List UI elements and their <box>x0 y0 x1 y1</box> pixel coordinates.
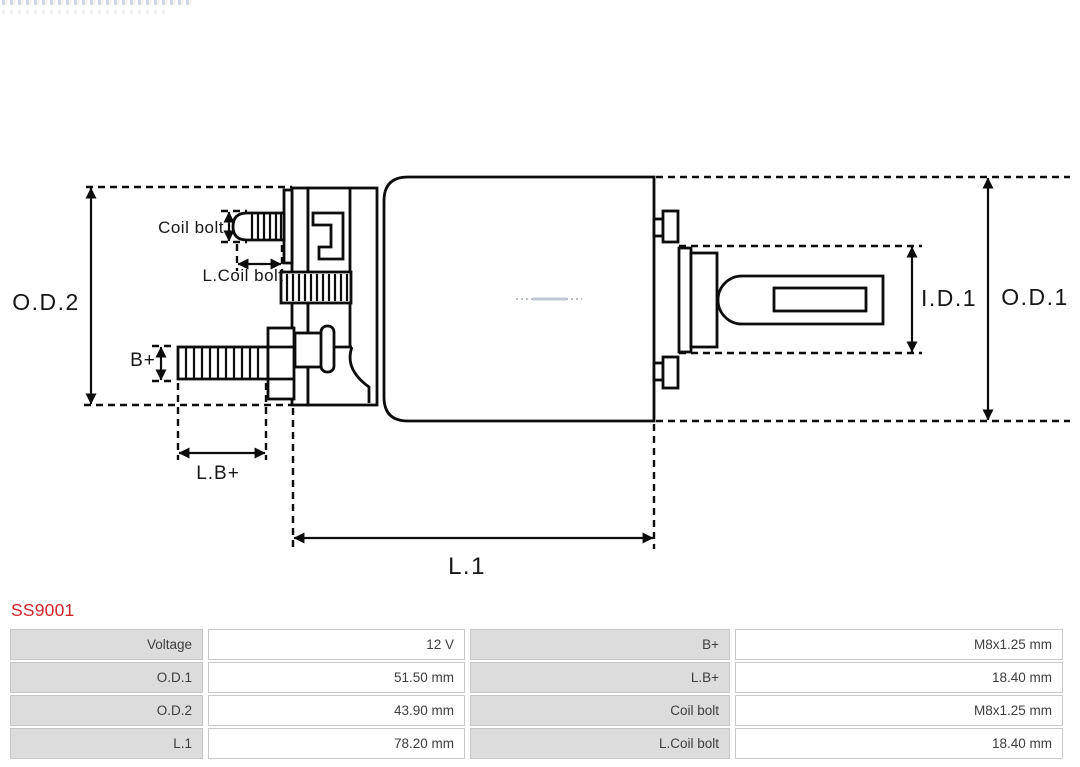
plunger-hub <box>691 253 717 347</box>
coil-bolt-terminal <box>233 213 284 240</box>
plunger-collar <box>679 248 691 352</box>
dim-label-lb-plus: L.B+ <box>196 463 240 484</box>
product-drawing-page: O.D.2 O.D.1 I.D.1 L.1 L.B+ B+ Coil bolt … <box>0 0 1080 767</box>
spec-label: O.D.2 <box>10 695 203 726</box>
spec-value: M8x1.25 mm <box>735 629 1063 660</box>
contact-block <box>295 333 323 367</box>
solenoid-technical-drawing: O.D.2 O.D.1 I.D.1 L.1 L.B+ B+ Coil bolt … <box>0 0 1080 596</box>
solenoid-body <box>384 177 654 421</box>
spec-table: Voltage 12 V B+ M8x1.25 mm O.D.1 51.50 m… <box>10 629 1063 759</box>
spec-value: 78.20 mm <box>208 728 465 759</box>
dim-label-od2: O.D.2 <box>12 289 80 315</box>
hex-nut <box>268 328 294 399</box>
dim-label-l-coil-bolt: L.Coil bolt <box>202 266 283 285</box>
dim-label-od1: O.D.1 <box>1001 284 1069 310</box>
b-plus-terminal <box>178 328 294 399</box>
contact-washer <box>321 326 334 372</box>
spec-label: B+ <box>470 629 730 660</box>
spec-label: L.Coil bolt <box>470 728 730 759</box>
cap-tab-top <box>663 211 678 242</box>
cap-tab-bottom <box>663 357 678 388</box>
spec-value: 51.50 mm <box>208 662 465 693</box>
plunger-slot <box>774 288 866 311</box>
cropped-logo-fragment <box>2 0 192 16</box>
spec-label: L.1 <box>10 728 203 759</box>
spec-value: 18.40 mm <box>735 728 1063 759</box>
spec-value: 18.40 mm <box>735 662 1063 693</box>
spec-label: O.D.1 <box>10 662 203 693</box>
plunger-assembly <box>654 211 883 388</box>
threaded-collar <box>281 272 351 303</box>
spec-value: M8x1.25 mm <box>735 695 1063 726</box>
spec-value: 12 V <box>208 629 465 660</box>
spec-value: 43.90 mm <box>208 695 465 726</box>
part-number: SS9001 <box>11 600 74 621</box>
spec-label: L.B+ <box>470 662 730 693</box>
dim-label-coil-bolt: Coil bolt <box>158 218 224 237</box>
dim-label-l1: L.1 <box>448 553 486 580</box>
spec-label: Voltage <box>10 629 203 660</box>
dim-label-id1: I.D.1 <box>921 285 977 311</box>
dim-label-b-plus: B+ <box>130 350 156 371</box>
spec-label: Coil bolt <box>470 695 730 726</box>
